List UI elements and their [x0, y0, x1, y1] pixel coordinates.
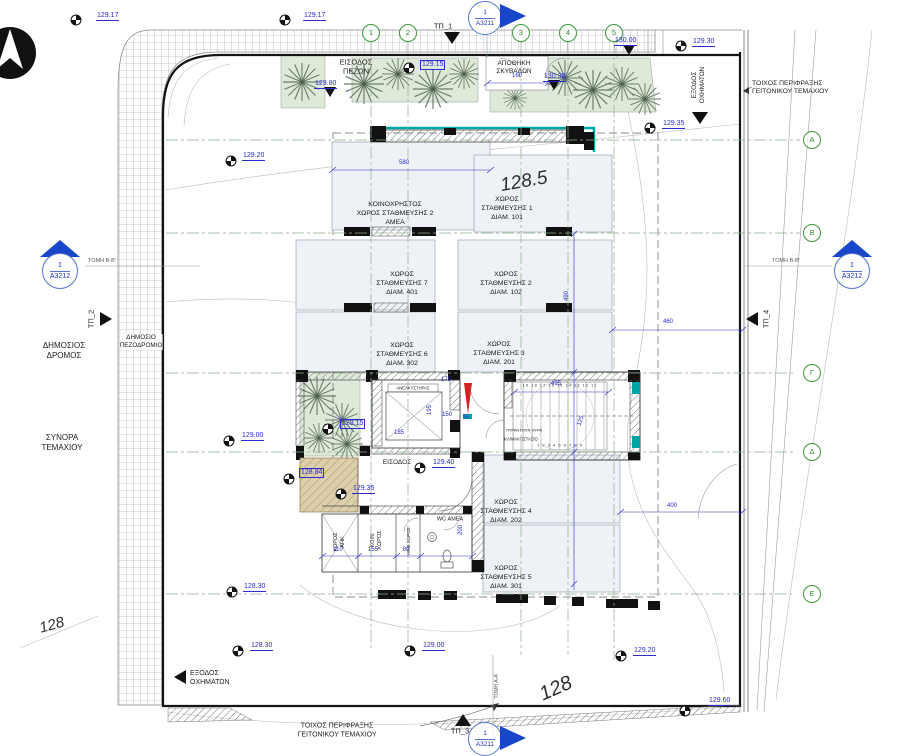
benchmark-icon — [224, 436, 235, 447]
elevation-label: 128.30 — [243, 583, 266, 592]
benchmark-icon — [616, 651, 627, 662]
benchmark-icon — [226, 156, 237, 167]
elevation-label: 129.15 — [340, 419, 365, 429]
plot-border-label: ΣΥΝΟΡΑ ΤΕΜΑΧΙΟΥ — [41, 433, 82, 453]
wc-amea-label: WC ΑΜΕΑ — [437, 517, 463, 524]
dimension-label: 185 — [394, 430, 404, 436]
benchmark-icon — [645, 123, 656, 134]
parking-space-label: ΧΩΡΟΣ ΣΤΑΘΜΕΥΣΗΣ 6 ΔΙΑΜ. 302 — [376, 342, 427, 368]
dimension-label: 155 — [368, 547, 378, 553]
section-aa-caption: ΤΟΜΗ Α-Α' — [494, 673, 500, 698]
section-code: Α3212 — [43, 272, 77, 282]
level-note-128-5: 128.5 — [499, 166, 550, 198]
staircase-label: ΚΛΙΜΑΚΟΣΤΑΣΙΟ — [504, 436, 538, 441]
grid-row-bubble: Γ — [803, 364, 821, 382]
tp3-label: ΤΠ_3 — [451, 726, 469, 735]
benchmark-icon — [280, 15, 291, 26]
contour-128-left: 128 — [37, 614, 66, 639]
grid-column-bubble: 4 — [559, 24, 577, 42]
elevation-label: 129.00 — [241, 432, 264, 441]
dimension-label: 160 — [512, 73, 522, 79]
dimension-label: 495 — [551, 381, 561, 387]
grid-column-bubble: 2 — [399, 24, 417, 42]
section-marker-bb-left: 1Α3212 — [38, 240, 82, 289]
vehicle-exit-bottom-label: ΕΞΟΔΟΣ ΟΧΗΜΑΤΩΝ — [190, 670, 230, 688]
benchmark-icon — [404, 63, 415, 74]
contour-128-bottom: 128 — [536, 671, 577, 707]
dimension-label: 490 — [564, 291, 570, 301]
dimension-label: 580 — [399, 160, 409, 166]
section-marker-bb-right: 1Α3212 — [830, 240, 874, 289]
benchmark-icon — [71, 15, 82, 26]
elevation-label: 128.84 — [299, 468, 324, 478]
elevation-label: 129.15 — [420, 60, 445, 70]
elevation-label: 129.35 — [662, 120, 685, 129]
benchmark-icon — [336, 489, 347, 500]
public-road-label: ΔΗΜΟΣΙΟΣ ΔΡΟΜΟΣ — [43, 341, 85, 361]
fire-door-label: ΠΥΡΑΝΤΟΧΗ ΘΥΡΑ — [506, 428, 542, 433]
parking-space-label: ΧΩΡΟΣ ΣΤΑΘΜΕΥΣΗΣ 5 ΔΙΑΜ. 301 — [480, 565, 531, 591]
elevation-label: 129.17 — [96, 12, 119, 21]
parking-space-label: ΧΩΡΟΣ ΣΤΑΘΜΕΥΣΗΣ 7 ΔΙΑΜ. 401 — [376, 271, 427, 297]
dimension-label: 110 — [333, 547, 343, 553]
site-plan-canvas: ΕΙΣΟΔΟΣ ΠΕΖΩΝ ΑΠΟΘΗΚΗ ΣΚΥΒΑΛΩΝ ΤΟΙΧΟΣ ΠΕ… — [0, 0, 900, 756]
section-code: Α3212 — [835, 272, 869, 282]
fence-wall-top-label: ΤΟΙΧΟΣ ΠΕΡΙΦΡΑΞΗΣ ΓΕΙΤΟΝΙΚΟΥ ΤΕΜΑΧΙΟΥ — [752, 80, 829, 97]
elevation-label: 129.35 — [352, 485, 375, 494]
parking-space-label: ΚΟΙΝΟΧΡΗΣΤΟΣ ΧΩΡΟΣ ΣΤΑΘΜΕΥΣΗΣ 2 ΑΜΕΑ — [357, 201, 434, 227]
tp2-label: ΤΠ_2 — [86, 310, 95, 328]
section-code: Α3211 — [469, 740, 501, 749]
section-flag-icon — [500, 726, 526, 750]
grid-row-bubble: Ε — [803, 585, 821, 603]
benchmark-icon — [233, 646, 244, 657]
section-code: Α3211 — [469, 19, 501, 28]
level-arrow-icon — [623, 45, 635, 55]
dimension-label: 35 — [463, 415, 470, 421]
elevation-label: 129.00 — [422, 642, 445, 651]
section-number: 1 — [475, 8, 494, 18]
dimension-label: 200 — [458, 525, 464, 535]
grid-row-bubble: Β — [803, 224, 821, 242]
tp4-label: ΤΠ_4 — [761, 310, 770, 328]
dimension-label: 175 — [441, 377, 451, 383]
stair-step-numbers-low: 1 2 3 4 5 6 7 8 9 — [537, 443, 583, 448]
benchmark-icon — [680, 706, 691, 717]
parking-space-label: ΧΩΡΟΣ ΣΤΑΘΜΕΥΣΗΣ 4 ΔΙΑΜ. 202 — [480, 499, 531, 525]
section-number: 1 — [475, 729, 494, 739]
annotation-overlay: ΕΙΣΟΔΟΣ ΠΕΖΩΝ ΑΠΟΘΗΚΗ ΣΚΥΒΑΛΩΝ ΤΟΙΧΟΣ ΠΕ… — [0, 0, 900, 756]
dimension-label: 80 — [403, 547, 410, 553]
elevation-label: 129.80 — [314, 80, 337, 89]
elevation-label: 129.17 — [303, 12, 326, 21]
elevation-label: 130.00 — [614, 37, 637, 46]
grid-row-bubble: Δ — [803, 443, 821, 461]
grid-column-bubble: 3 — [512, 24, 530, 42]
pedestrian-entrance-label: ΕΙΣΟΔΟΣ ΠΕΖΩΝ — [340, 58, 373, 77]
benchmark-icon — [323, 424, 334, 435]
parking-space-label: ΧΩΡΟΣ ΣΤΑΘΜΕΥΣΗΣ 2 ΔΙΑΜ. 102 — [480, 271, 531, 297]
benchmark-icon — [676, 41, 687, 52]
benchmark-icon — [227, 587, 238, 598]
section-bb-left-caption: ΤΟΜΗ Β-Β' — [88, 258, 116, 265]
elevation-label: 129.30 — [692, 38, 715, 47]
dimension-label: 150 — [442, 412, 452, 418]
parking-space-label: ΧΩΡΟΣ ΣΤΑΘΜΕΥΣΗΣ 3 ΔΙΑΜ. 201 — [473, 341, 524, 367]
dimension-label: 400 — [667, 503, 677, 509]
elevator-label: ΑΝΕΛΚΥΣΤΗΡΑΣ — [396, 385, 429, 390]
fence-wall-bottom-label: ΤΟΙΧΟΣ ΠΕΡΙΦΡΑΞΗΣ ΓΕΙΤΟΝΙΚΟΥ ΤΕΜΑΧΙΟΥ — [297, 722, 376, 740]
public-sidewalk-label: ΔΗΜΟΣΙΟ ΠΕΖΟΔΡΟΜΙΟ — [120, 334, 163, 350]
parking-space-label: ΧΩΡΟΣ ΣΤΑΘΜΕΥΣΗΣ 1 ΔΙΑΜ. 101 — [481, 196, 532, 222]
grid-row-bubble: Α — [803, 131, 821, 149]
benchmark-icon — [415, 463, 426, 474]
elevation-label: 129.20 — [242, 152, 265, 161]
dimension-label: 460 — [663, 319, 673, 325]
section-bb-right-caption: ΤΟΜΗ Β-Β' — [772, 258, 800, 265]
vehicle-exit-top-label: ΕΞΟΔΟΣ ΟΧΗΜΑΤΩΝ — [691, 67, 707, 104]
elevation-label: 128.30 — [250, 642, 273, 651]
section-number: 1 — [50, 261, 70, 272]
section-number: 1 — [842, 261, 862, 272]
benchmark-icon — [405, 646, 416, 657]
elevation-label: 130.30 — [543, 73, 566, 82]
elevation-label: 129.40 — [432, 459, 455, 468]
elevation-label: 129.60 — [708, 697, 731, 706]
entrance-label: ΕΙΣΟΔΟΣ — [383, 459, 411, 467]
grid-column-bubble: 1 — [362, 24, 380, 42]
dimension-label: 195 — [427, 405, 433, 415]
benchmark-icon — [284, 474, 295, 485]
elevation-label: 129.20 — [633, 647, 656, 656]
dimension-label: 125 — [576, 415, 585, 426]
tp1-label: ΤΠ_1 — [434, 21, 452, 30]
